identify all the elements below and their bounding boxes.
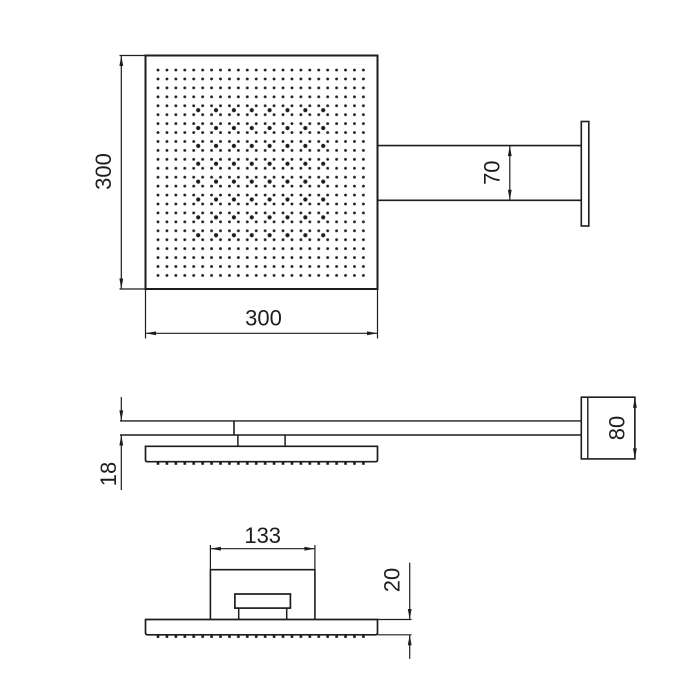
svg-text:20: 20: [379, 568, 404, 592]
svg-text:80: 80: [604, 416, 629, 440]
svg-text:300: 300: [245, 305, 282, 330]
svg-text:133: 133: [244, 523, 281, 548]
svg-text:18: 18: [96, 462, 121, 486]
svg-text:300: 300: [91, 153, 116, 190]
svg-text:70: 70: [479, 160, 504, 184]
